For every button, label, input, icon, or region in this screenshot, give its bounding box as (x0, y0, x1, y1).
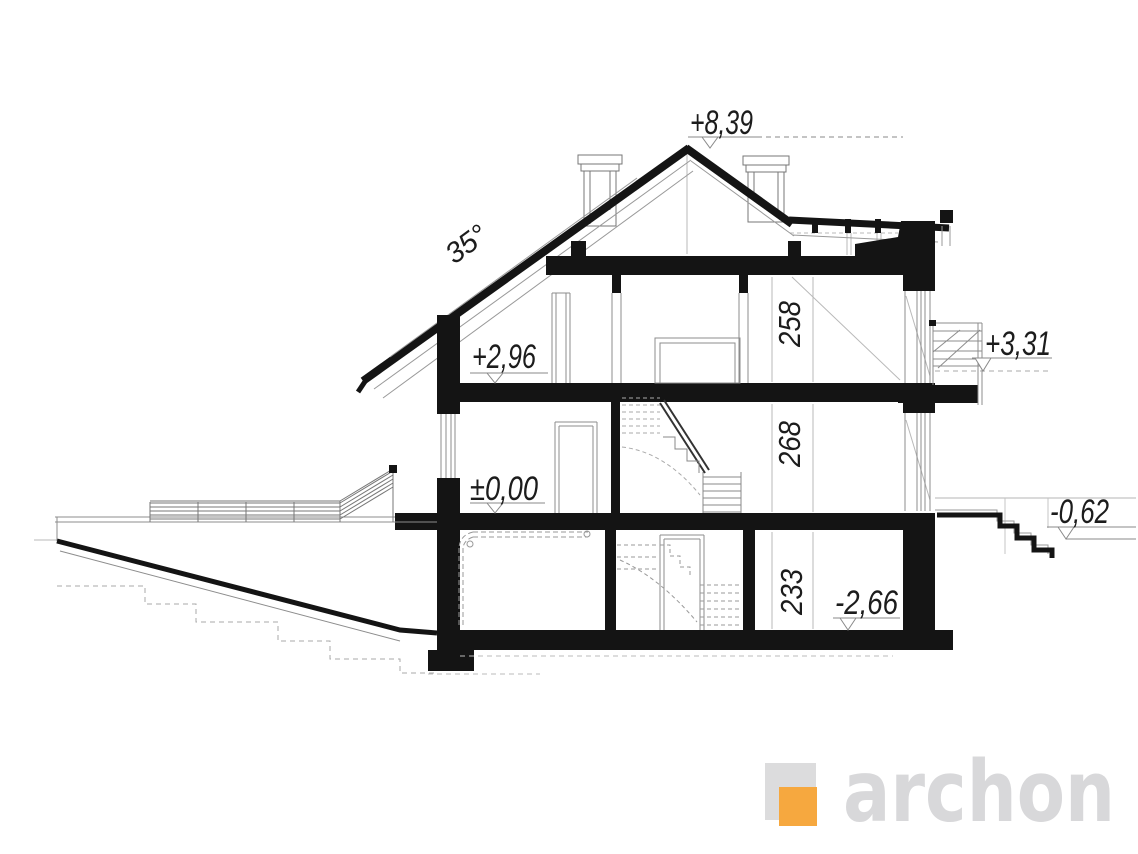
balcony-slab (898, 385, 978, 403)
ridge-level-label: +8,39 (690, 104, 753, 142)
logo-text: archon (843, 743, 1115, 842)
garage-door-track (459, 531, 590, 626)
basement-level-label: -2,66 (835, 584, 898, 622)
roof-fascia (940, 210, 953, 223)
right-exterior-wall (903, 513, 935, 650)
ground-floor-slab (395, 513, 935, 530)
foundation-footing (428, 650, 474, 671)
basement-height-label: 233 (774, 569, 809, 616)
fence-left (150, 465, 397, 522)
roof-angle-label: 35° (440, 219, 494, 271)
logo: archon (765, 743, 1115, 842)
attic-height-label: 258 (772, 300, 807, 348)
balcony-level-label: +3,31 (985, 325, 1051, 363)
ground-height-label: 268 (772, 420, 807, 468)
staircase (617, 398, 741, 625)
terrace-level-label: -0,62 (1050, 493, 1109, 531)
logo-orange-square (779, 787, 817, 826)
ground-partition-wall (611, 402, 620, 513)
ground-level-label: ±0,00 (470, 470, 538, 508)
driveway-slope (57, 541, 437, 633)
attic-floor-level-label: +2,96 (472, 338, 536, 376)
cross-section-drawing: +8,39 35° +2,96 +3,31 ±0,00 -0,62 -2,66 (0, 0, 1138, 854)
basement-floor-slab (437, 630, 953, 650)
attic-ceiling-slab (546, 256, 935, 275)
room-height-dimensions: 258 268 233 (772, 300, 809, 616)
attic-floor-slab (437, 383, 935, 402)
